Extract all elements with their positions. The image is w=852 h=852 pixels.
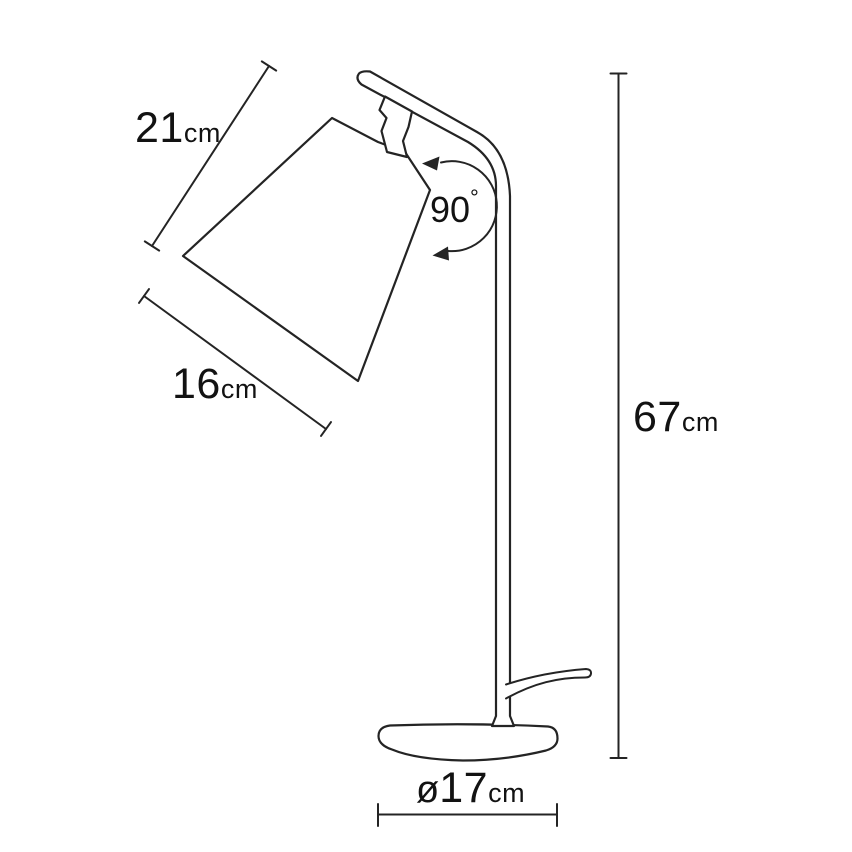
dimension-base-diameter: ø17cm (378, 764, 557, 826)
label-lamp-height: 67cm (633, 393, 719, 441)
lamp-dimension-diagram: 21cm 16cm 67cm ø17cm (0, 0, 852, 852)
lamp-shade (183, 118, 430, 381)
dimension-lamp-height: 67cm (611, 74, 719, 759)
label-shade-slant: 21cm (135, 104, 221, 152)
dim-tick (321, 422, 331, 436)
label-shade-width: 16cm (172, 360, 258, 408)
dim-tick (262, 61, 276, 70)
dim-tick (139, 289, 149, 303)
label-head-rotation: 90° (430, 185, 479, 230)
lamp-base (379, 724, 558, 760)
dim-tick (145, 241, 159, 250)
power-cord (506, 669, 591, 699)
rotation-arrowhead-bottom-icon (433, 247, 450, 261)
rotation-annotation: 90° (422, 157, 497, 261)
label-base-diameter: ø17cm (416, 764, 525, 812)
lamp-drawing (183, 71, 591, 760)
rotation-arrowhead-top-icon (422, 157, 440, 171)
dimension-annotations: 21cm 16cm 67cm ø17cm (135, 61, 719, 826)
diagram-canvas: 21cm 16cm 67cm ø17cm (0, 0, 852, 852)
